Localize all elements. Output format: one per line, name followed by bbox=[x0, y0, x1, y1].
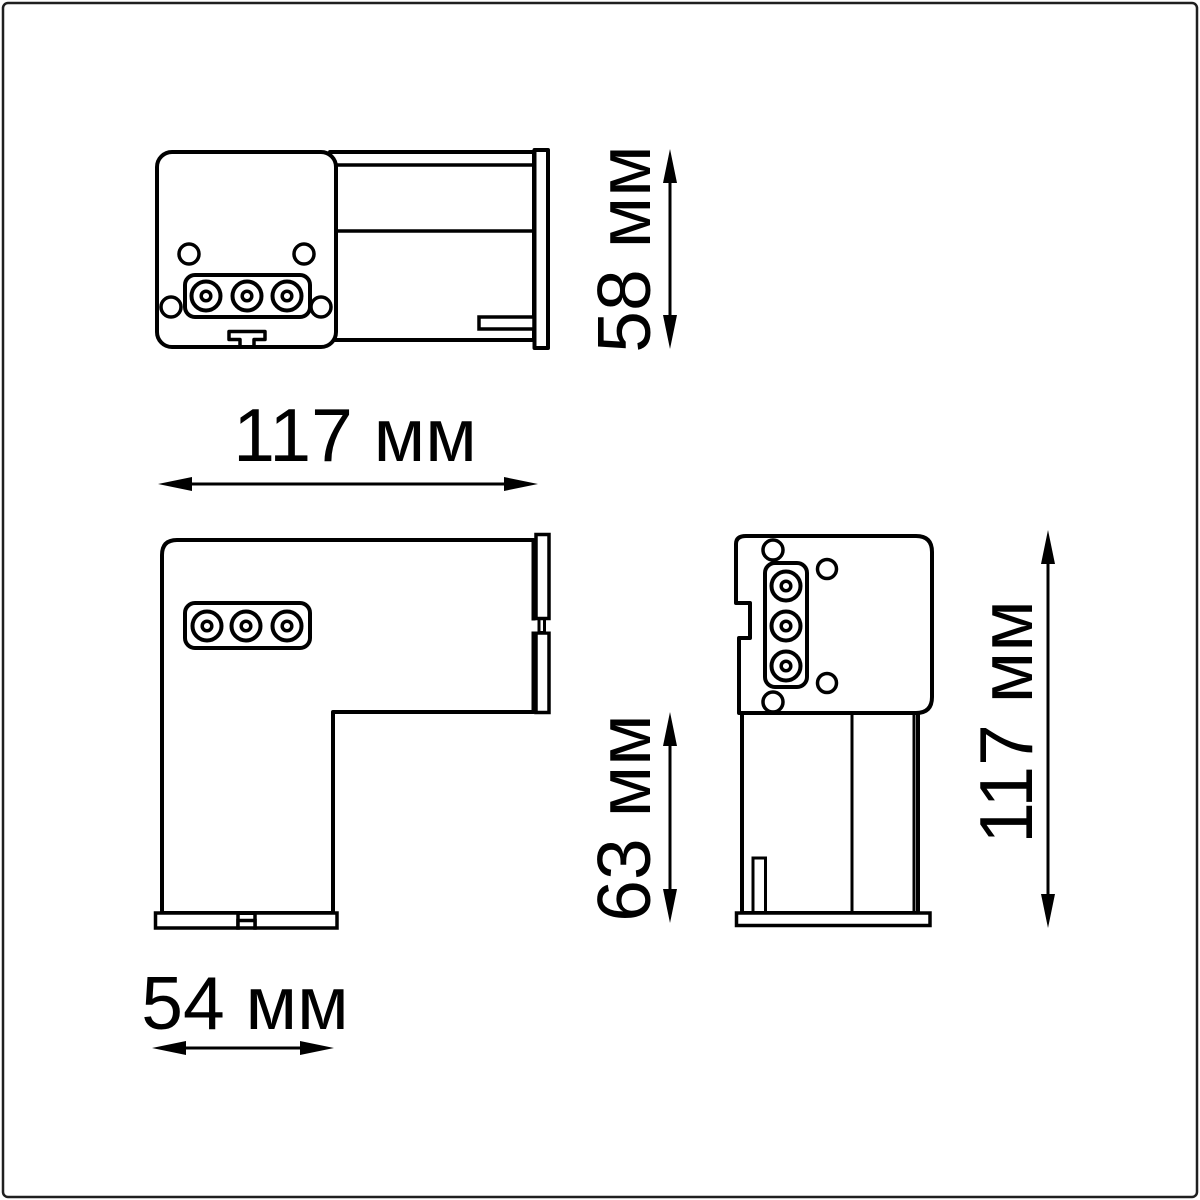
front-view bbox=[736, 536, 932, 926]
technical-drawing: 58 мм 117 мм 63 мм 54 мм 117 мм bbox=[0, 0, 1200, 1200]
top-view bbox=[157, 150, 548, 349]
connector-pins-icon bbox=[193, 612, 302, 641]
screw-hole-icon bbox=[294, 244, 314, 264]
end-cap-gap bbox=[530, 621, 552, 632]
screw-hole-icon bbox=[161, 297, 181, 317]
dimension-117mm-top: 117 мм bbox=[158, 393, 538, 491]
front-view-base bbox=[737, 913, 931, 926]
base-plate-right bbox=[255, 913, 337, 928]
arrow-left-icon bbox=[158, 477, 192, 491]
dimension-54mm: 54 мм bbox=[141, 961, 348, 1055]
side-view-end-cap-lower bbox=[536, 633, 549, 713]
dimension-label-foot-width: 54 мм bbox=[141, 961, 348, 1045]
screw-hole-icon bbox=[311, 297, 331, 317]
dimension-label-top-width: 117 мм bbox=[233, 393, 477, 477]
side-view-outline bbox=[162, 540, 534, 913]
dimension-63mm: 63 мм bbox=[582, 712, 677, 923]
screw-hole-icon bbox=[818, 560, 837, 579]
screw-hole-icon bbox=[818, 674, 837, 693]
dimension-label-front-height: 117 мм bbox=[964, 600, 1048, 844]
screw-hole-icon bbox=[179, 244, 199, 264]
dimension-label-top-height: 58 мм bbox=[582, 145, 666, 352]
screw-hole-icon bbox=[763, 540, 783, 560]
top-view-latch bbox=[479, 317, 534, 329]
base-plate-bridge bbox=[238, 921, 255, 929]
arrow-up-icon bbox=[1041, 530, 1055, 564]
arrow-right-icon bbox=[504, 477, 538, 491]
screw-hole-icon bbox=[763, 692, 783, 712]
base-plate-left bbox=[156, 913, 239, 928]
top-view-end-cap bbox=[535, 150, 549, 348]
front-view-body bbox=[742, 700, 918, 913]
side-view-end-cap-upper bbox=[536, 535, 549, 619]
side-view bbox=[156, 535, 553, 929]
connector-pins-icon bbox=[192, 282, 302, 311]
dimension-58mm: 58 мм bbox=[582, 145, 677, 352]
connector-pins-icon bbox=[772, 572, 801, 681]
arrow-down-icon bbox=[1041, 894, 1055, 928]
dimension-label-foot-height: 63 мм bbox=[582, 714, 666, 921]
dimension-117mm-right: 117 мм bbox=[964, 530, 1055, 928]
top-view-body bbox=[330, 152, 534, 340]
